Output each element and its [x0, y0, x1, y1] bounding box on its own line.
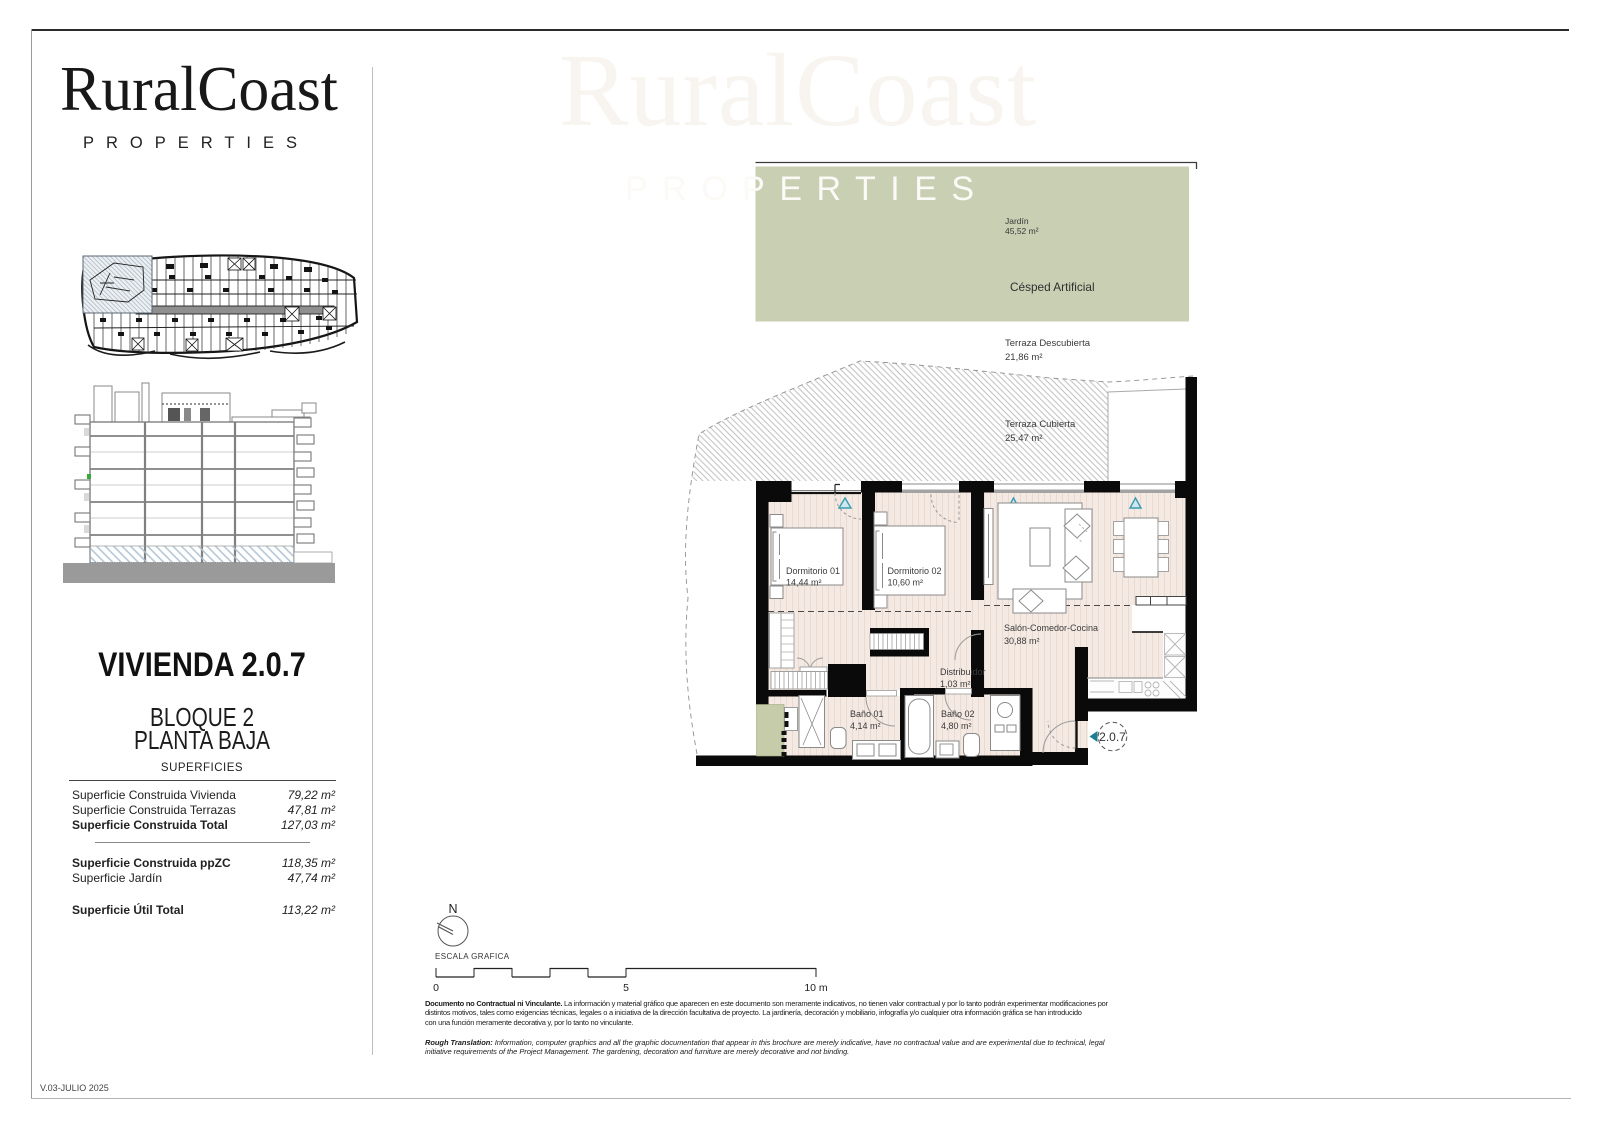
svg-text:14,44 m²: 14,44 m²: [786, 578, 822, 588]
svg-text:Dormitorio 02: Dormitorio 02: [888, 566, 942, 576]
svg-text:Terraza Cubierta: Terraza Cubierta: [1005, 419, 1076, 430]
svg-text:5: 5: [623, 982, 629, 994]
svg-text:Distribuidor: Distribuidor: [940, 667, 986, 677]
svg-text:21,86 m²: 21,86 m²: [1005, 352, 1043, 363]
svg-text:Salón-Comedor-Cocina: Salón-Comedor-Cocina: [1004, 623, 1098, 633]
svg-text:Césped Artificial: Césped Artificial: [1010, 280, 1095, 294]
svg-text:25,47 m²: 25,47 m²: [1005, 433, 1043, 444]
svg-text:Jardín: Jardín: [1005, 216, 1029, 226]
svg-text:4,80 m²: 4,80 m²: [941, 721, 972, 731]
svg-text:N: N: [448, 902, 457, 916]
svg-text:10,60 m²: 10,60 m²: [888, 578, 924, 588]
svg-text:45,52 m²: 45,52 m²: [1005, 226, 1039, 236]
svg-text:Terraza Descubierta: Terraza Descubierta: [1005, 338, 1091, 349]
svg-text:1,03 m²: 1,03 m²: [940, 679, 971, 689]
svg-text:Baño 02: Baño 02: [941, 709, 975, 719]
svg-text:2.0.7: 2.0.7: [1099, 730, 1126, 744]
svg-text:Baño 01: Baño 01: [850, 709, 884, 719]
svg-text:0: 0: [433, 982, 439, 994]
svg-text:Dormitorio 01: Dormitorio 01: [786, 566, 840, 576]
svg-text:30,88 m²: 30,88 m²: [1004, 636, 1040, 646]
svg-text:10 m: 10 m: [804, 982, 828, 994]
svg-text:ESCALA GRAFICA: ESCALA GRAFICA: [435, 952, 510, 961]
svg-text:4,14 m²: 4,14 m²: [850, 721, 881, 731]
